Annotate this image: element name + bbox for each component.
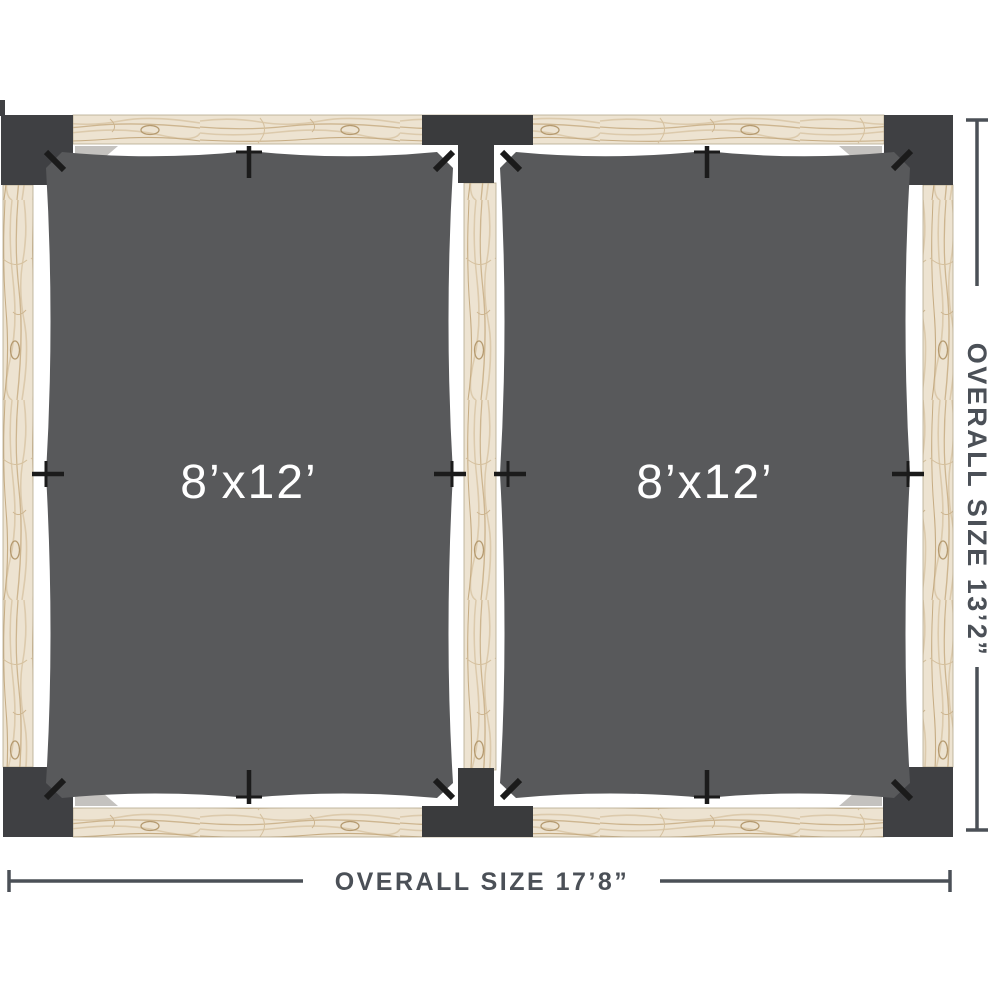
- center-beam: [464, 183, 496, 770]
- left-beam: [3, 185, 33, 767]
- right-beam: [923, 185, 953, 767]
- dimension-height: OVERALL SIZE 13’2”: [962, 119, 992, 831]
- canopy-right-size-label: 8’x12’: [636, 456, 773, 509]
- dimension-width-label: OVERALL SIZE 17’8”: [335, 868, 630, 896]
- canopy-left-size-label: 8’x12’: [180, 456, 317, 509]
- dimension-height-label: OVERALL SIZE 13’2”: [962, 343, 992, 658]
- dimension-width: OVERALL SIZE 17’8”: [8, 868, 951, 896]
- pergola-dimension-diagram: 8’x12’ 8’x12’: [0, 0, 1000, 1000]
- post-strap-top-left: [0, 100, 5, 116]
- diagram-canvas: 8’x12’ 8’x12’: [0, 0, 1000, 1000]
